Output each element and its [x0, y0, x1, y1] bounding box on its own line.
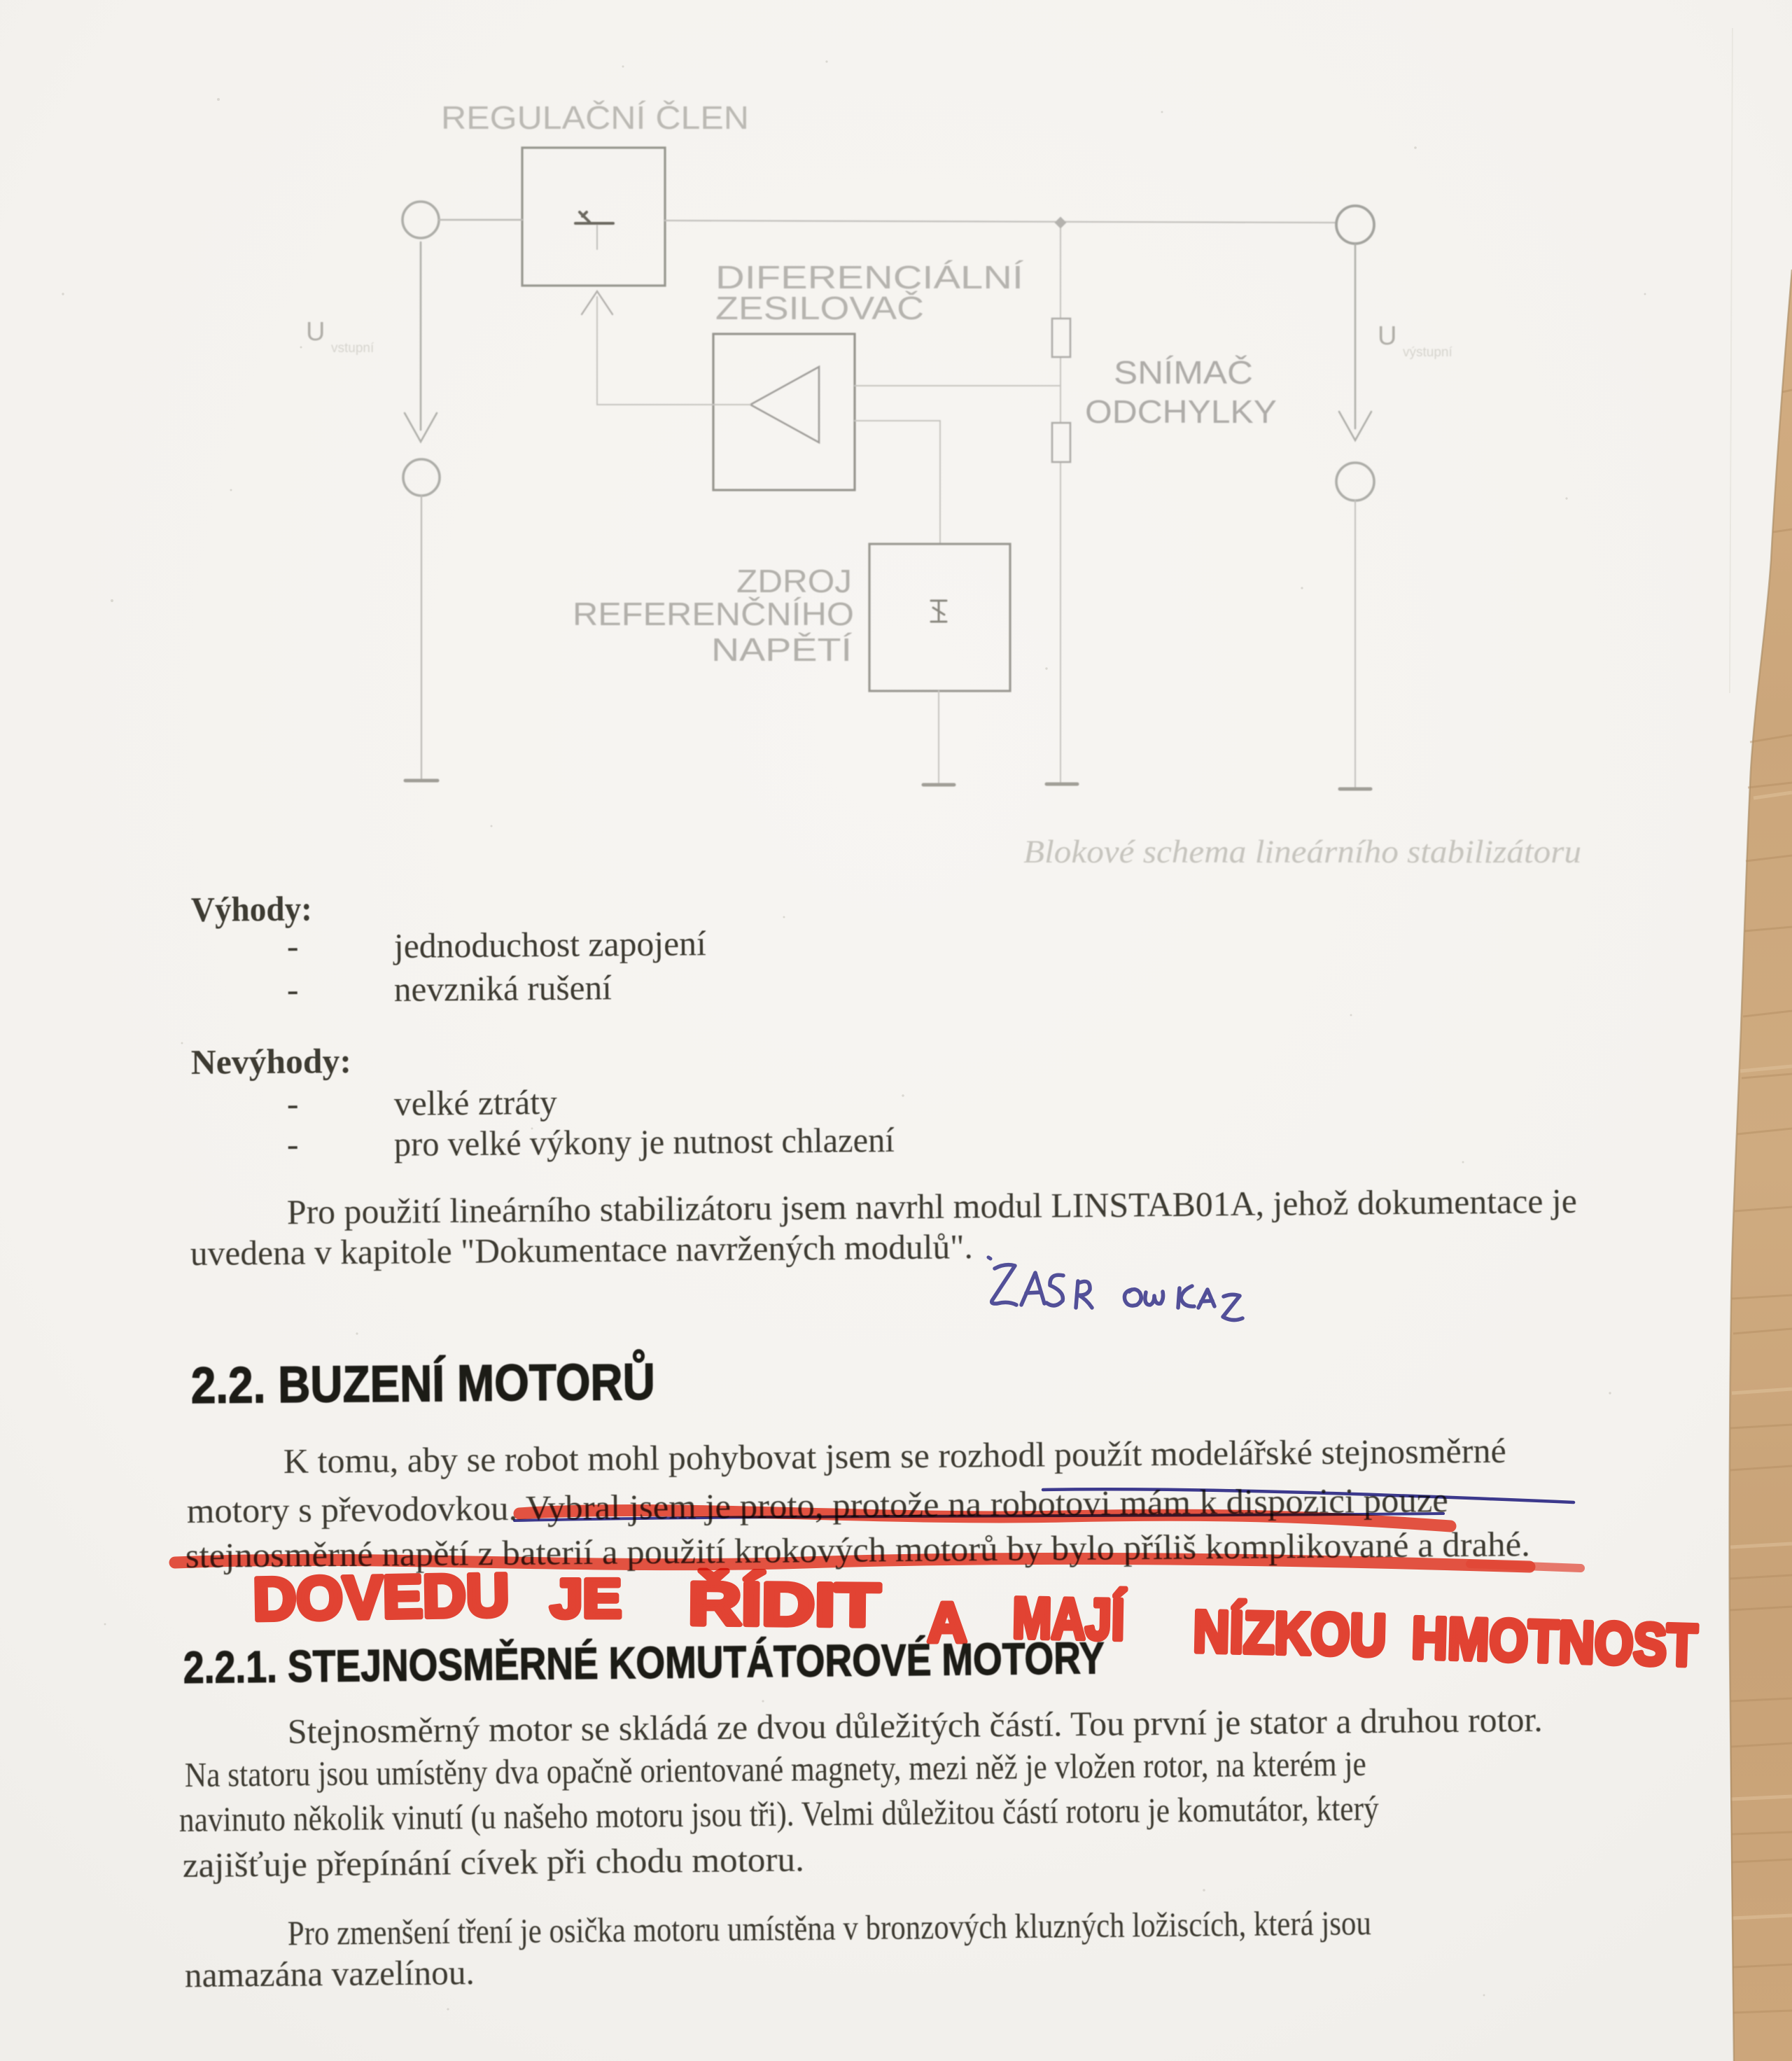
- svg-text:U: U: [1378, 321, 1396, 351]
- svg-text:-: -: [287, 926, 299, 965]
- svg-text:2.2. BUZENÍ MOTORŮ: 2.2. BUZENÍ MOTORŮ: [190, 1350, 655, 1414]
- svg-text:A: A: [927, 1591, 967, 1654]
- svg-text:-: -: [287, 1084, 299, 1123]
- svg-text:velké ztráty: velké ztráty: [394, 1082, 557, 1123]
- svg-text:DOVEDU: DOVEDU: [253, 1562, 510, 1633]
- svg-text:-: -: [287, 1124, 299, 1164]
- svg-text:MAJÍ: MAJÍ: [1012, 1586, 1126, 1652]
- svg-text:Výhody:: Výhody:: [191, 888, 312, 929]
- svg-text:vstupní: vstupní: [331, 341, 374, 356]
- svg-text:JE: JE: [550, 1567, 622, 1629]
- svg-text:ŘÍDIT: ŘÍDIT: [688, 1570, 881, 1639]
- svg-text:Nevýhody:: Nevýhody:: [191, 1041, 351, 1082]
- svg-text:pro velké výkony je nutnost ch: pro velké výkony je nutnost chlazení: [394, 1120, 895, 1164]
- svg-text:ZESILOVAČ: ZESILOVAČ: [715, 290, 924, 326]
- svg-text:výstupní: výstupní: [1403, 345, 1452, 360]
- svg-text:SNÍMAČ: SNÍMAČ: [1114, 354, 1253, 391]
- svg-text:REGULAČNÍ ČLEN: REGULAČNÍ ČLEN: [441, 99, 749, 136]
- svg-text:ZDROJ: ZDROJ: [736, 563, 852, 599]
- svg-text:U: U: [306, 317, 325, 347]
- svg-text:HMOTNOST: HMOTNOST: [1410, 1605, 1697, 1678]
- svg-text:REFERENČNÍHO: REFERENČNÍHO: [573, 596, 854, 632]
- svg-text:NÍZKOU: NÍZKOU: [1193, 1598, 1387, 1668]
- svg-text:jednoduchost zapojení: jednoduchost zapojení: [393, 923, 707, 965]
- svg-text:uvedena v kapitole "Dokumentac: uvedena v kapitole "Dokumentace navržený…: [190, 1227, 973, 1273]
- svg-text:NAPĚTÍ: NAPĚTÍ: [711, 631, 852, 668]
- svg-text:nevzniká rušení: nevzniká rušení: [394, 967, 612, 1009]
- svg-text:namazána vazelínou.: namazána vazelínou.: [185, 1952, 475, 1994]
- svg-text:zajišťuje přepínání cívek při: zajišťuje přepínání cívek při chodu moto…: [183, 1839, 804, 1885]
- svg-text:Blokové schema lineárního stab: Blokové schema lineárního stabilizátoru: [1023, 834, 1581, 870]
- svg-text:ODCHYLKY: ODCHYLKY: [1085, 393, 1277, 430]
- svg-text:-: -: [287, 970, 299, 1009]
